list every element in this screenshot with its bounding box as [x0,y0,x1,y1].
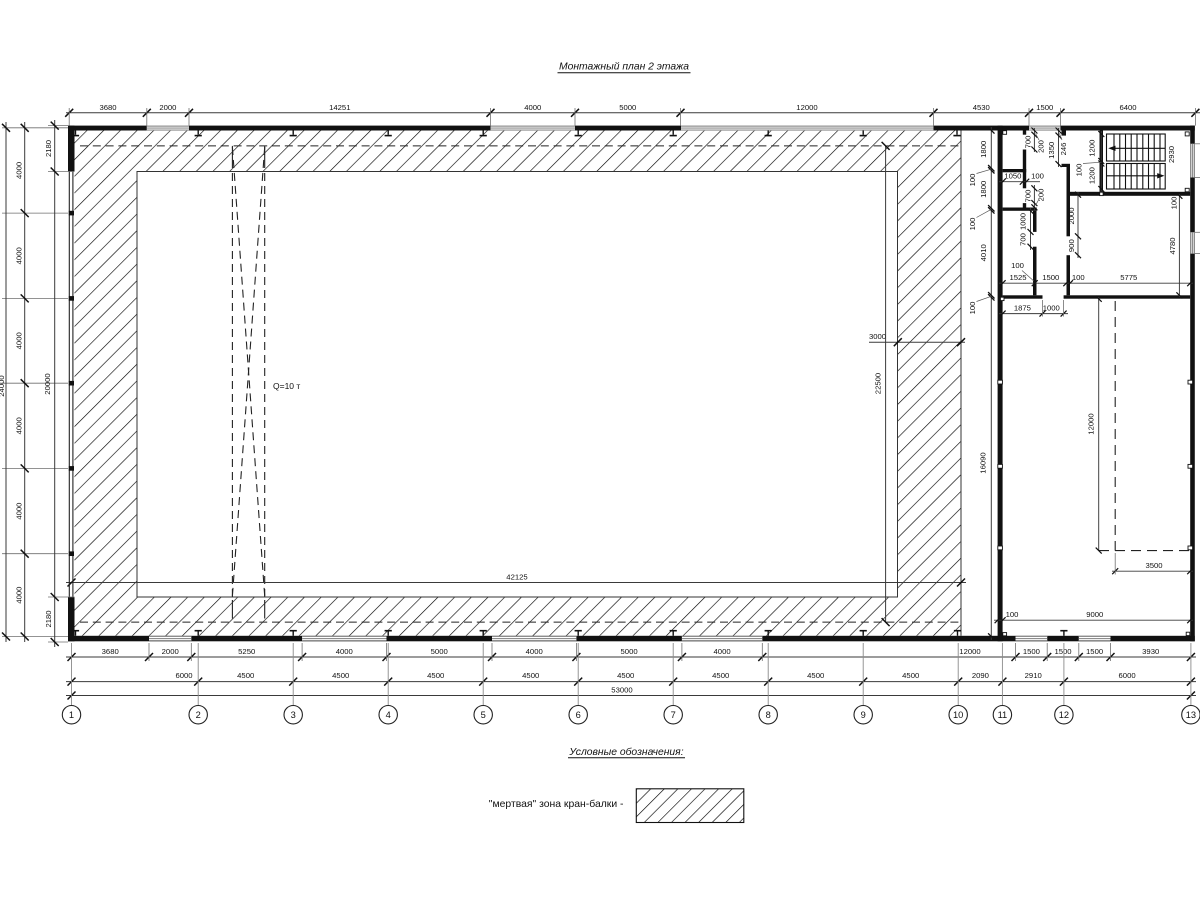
svg-text:Q=10 т: Q=10 т [273,381,300,391]
svg-text:4500: 4500 [807,671,824,680]
svg-text:9000: 9000 [1086,610,1103,619]
svg-text:4000: 4000 [524,103,541,112]
svg-text:100: 100 [1072,273,1085,282]
svg-text:100: 100 [1170,197,1179,210]
svg-text:1: 1 [69,710,74,720]
svg-text:53000: 53000 [611,686,632,695]
svg-text:200: 200 [1037,140,1046,153]
svg-text:5000: 5000 [619,103,636,112]
svg-text:22500: 22500 [874,373,883,394]
svg-text:4000: 4000 [714,647,731,656]
svg-text:4530: 4530 [973,103,990,112]
svg-text:6000: 6000 [1119,671,1136,680]
svg-text:12000: 12000 [796,103,817,112]
svg-text:12000: 12000 [1086,413,1095,434]
svg-text:1875: 1875 [1014,303,1031,312]
svg-text:9: 9 [861,710,866,720]
svg-text:3680: 3680 [99,103,116,112]
svg-text:10: 10 [953,710,963,720]
svg-text:5000: 5000 [431,647,448,656]
svg-text:2000: 2000 [1067,207,1076,224]
svg-text:5775: 5775 [1120,273,1137,282]
svg-text:3930: 3930 [1142,647,1159,656]
svg-text:100: 100 [968,302,977,315]
svg-text:1000: 1000 [1019,213,1028,230]
svg-text:2090: 2090 [972,671,989,680]
svg-text:7: 7 [671,710,676,720]
svg-text:5000: 5000 [621,647,638,656]
svg-text:4000: 4000 [15,503,24,520]
svg-text:4780: 4780 [1168,237,1177,254]
svg-text:13: 13 [1186,710,1196,720]
svg-text:1350: 1350 [1047,142,1056,159]
svg-text:6000: 6000 [175,671,192,680]
svg-text:4500: 4500 [237,671,254,680]
svg-text:Условные обозначения:: Условные обозначения: [568,746,683,758]
svg-text:4000: 4000 [15,332,24,349]
svg-text:1800: 1800 [979,181,988,198]
svg-text:11: 11 [998,710,1008,720]
svg-text:14251: 14251 [329,103,350,112]
svg-text:2000: 2000 [159,103,176,112]
svg-text:12000: 12000 [959,647,980,656]
svg-text:100: 100 [968,174,977,187]
svg-text:4500: 4500 [522,671,539,680]
svg-text:6400: 6400 [1119,103,1136,112]
svg-text:2180: 2180 [44,610,53,627]
svg-text:4500: 4500 [427,671,444,680]
svg-text:5250: 5250 [238,647,255,656]
svg-text:1000: 1000 [1043,303,1060,312]
svg-text:700: 700 [1019,233,1028,246]
svg-text:4000: 4000 [15,162,24,179]
svg-text:2000: 2000 [162,647,179,656]
svg-text:1525: 1525 [1009,273,1026,282]
svg-text:4000: 4000 [15,247,24,264]
svg-text:16090: 16090 [978,452,987,473]
svg-text:1200: 1200 [1088,140,1097,157]
svg-text:4: 4 [386,710,391,720]
svg-text:4000: 4000 [526,647,543,656]
svg-text:2910: 2910 [1025,671,1042,680]
svg-text:4500: 4500 [332,671,349,680]
svg-text:1500: 1500 [1086,647,1103,656]
svg-text:4000: 4000 [15,587,24,604]
svg-text:1050: 1050 [1004,172,1021,181]
svg-text:Монтажный план 2 этажа: Монтажный план 2 этажа [559,62,689,73]
svg-text:4500: 4500 [617,671,634,680]
svg-text:4500: 4500 [712,671,729,680]
svg-text:2930: 2930 [1167,146,1176,163]
svg-text:700: 700 [1023,136,1032,149]
svg-text:700: 700 [1023,190,1032,203]
svg-text:1200: 1200 [1088,167,1097,184]
svg-text:2: 2 [196,710,201,720]
svg-text:4000: 4000 [336,647,353,656]
svg-text:4000: 4000 [15,417,24,434]
svg-text:8: 8 [766,710,771,720]
svg-text:2180: 2180 [44,140,53,157]
svg-text:100: 100 [1006,610,1019,619]
svg-text:3680: 3680 [102,647,119,656]
svg-text:3: 3 [291,710,296,720]
svg-text:12: 12 [1059,710,1069,720]
svg-text:1500: 1500 [1042,273,1059,282]
svg-text:1800: 1800 [979,141,988,158]
svg-text:5: 5 [481,710,486,720]
svg-text:3000: 3000 [869,332,886,341]
svg-text:4010: 4010 [979,244,988,261]
svg-text:6: 6 [576,710,581,720]
svg-text:1500: 1500 [1023,647,1040,656]
svg-text:20000: 20000 [43,373,52,394]
svg-text:246: 246 [1059,143,1068,156]
svg-text:100: 100 [1075,164,1084,177]
svg-text:4500: 4500 [902,671,919,680]
svg-text:3500: 3500 [1145,561,1162,570]
svg-text:1500: 1500 [1054,647,1071,656]
svg-text:"мертвая" зона кран-балки -: "мертвая" зона кран-балки - [489,798,624,810]
svg-text:1500: 1500 [1036,103,1053,112]
svg-text:100: 100 [1031,172,1044,181]
svg-text:100: 100 [968,218,977,231]
svg-text:100: 100 [1011,261,1024,270]
svg-text:200: 200 [1037,189,1046,202]
svg-text:900: 900 [1067,239,1076,252]
svg-text:42125: 42125 [506,572,527,581]
svg-text:24000: 24000 [0,375,6,396]
